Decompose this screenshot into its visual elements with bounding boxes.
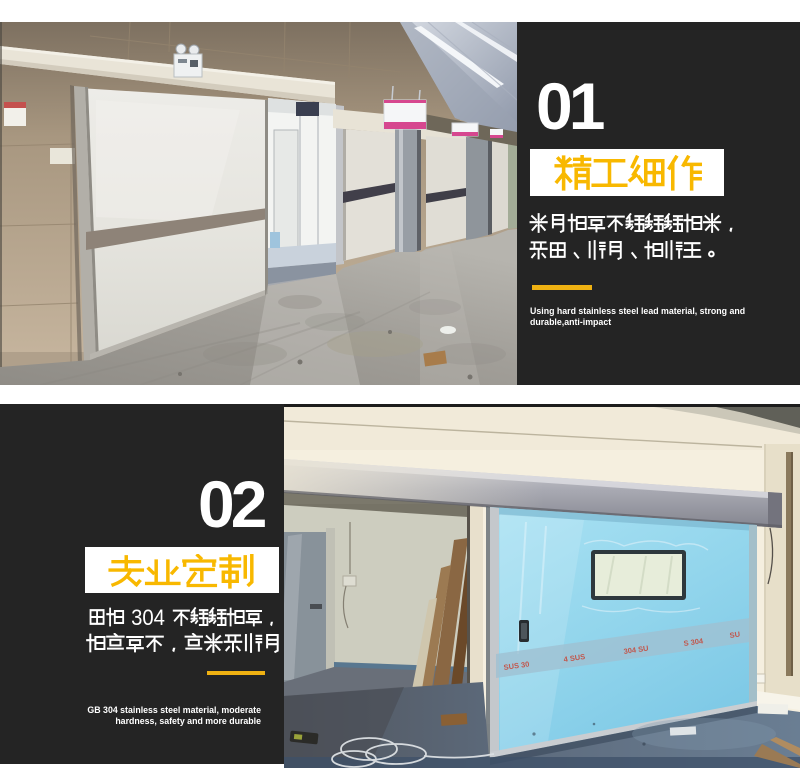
svg-text:SU: SU <box>729 630 741 640</box>
svg-text:304: 304 <box>131 607 165 627</box>
